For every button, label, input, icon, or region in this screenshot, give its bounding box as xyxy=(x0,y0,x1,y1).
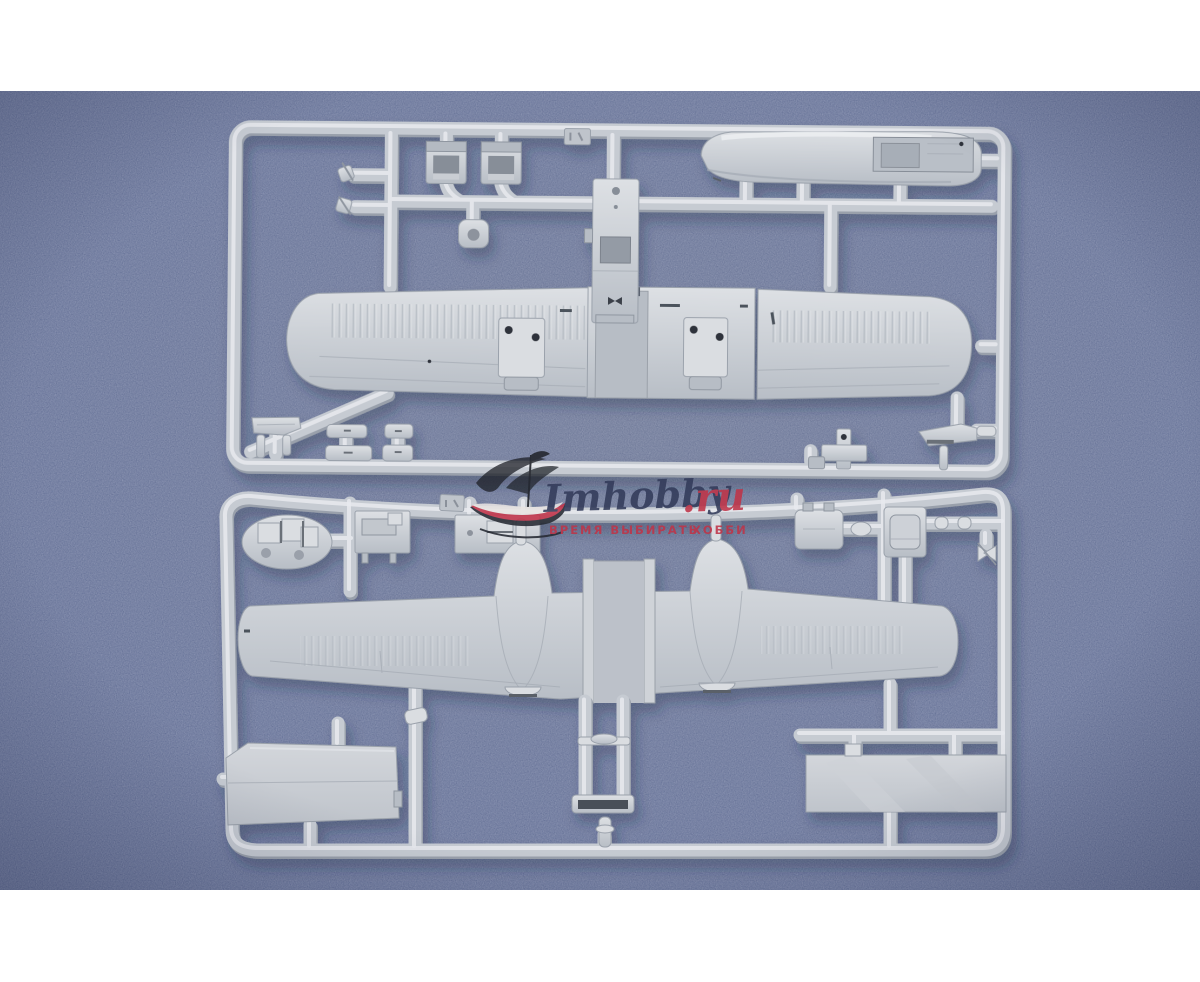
watermark-tld: .ru xyxy=(681,473,747,522)
watermark-slogan-left: ВРЕМЯ ВЫБИРАТЬ xyxy=(549,523,699,537)
sprue-photo: Imhobby .ru ВРЕМЯ ВЫБИРАТЬ ХОББИ xyxy=(0,91,1200,890)
product-photo: Imhobby .ru ВРЕМЯ ВЫБИРАТЬ ХОББИ xyxy=(0,0,1200,982)
letterbox-top xyxy=(0,0,1200,91)
letterbox-bottom xyxy=(0,890,1200,982)
watermark-slogan-right: ХОББИ xyxy=(692,523,748,537)
